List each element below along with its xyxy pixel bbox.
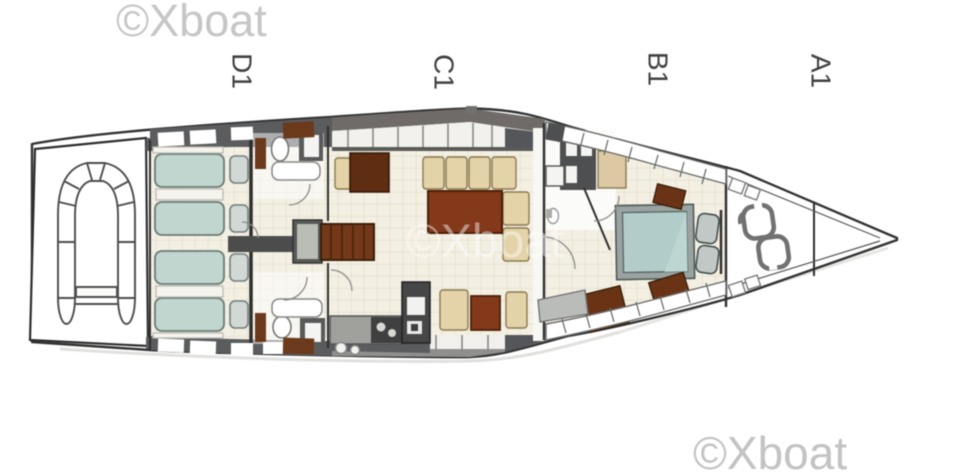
svg-text:©Xboat: ©Xboat [116,0,267,46]
svg-text:C1: C1 [429,54,460,90]
svg-text:A1: A1 [806,54,837,88]
svg-text:D1: D1 [227,53,258,89]
svg-text:B1: B1 [643,52,674,86]
svg-text:©Xboat: ©Xboat [693,427,847,474]
svg-text:©Xboat: ©Xboat [406,214,563,267]
